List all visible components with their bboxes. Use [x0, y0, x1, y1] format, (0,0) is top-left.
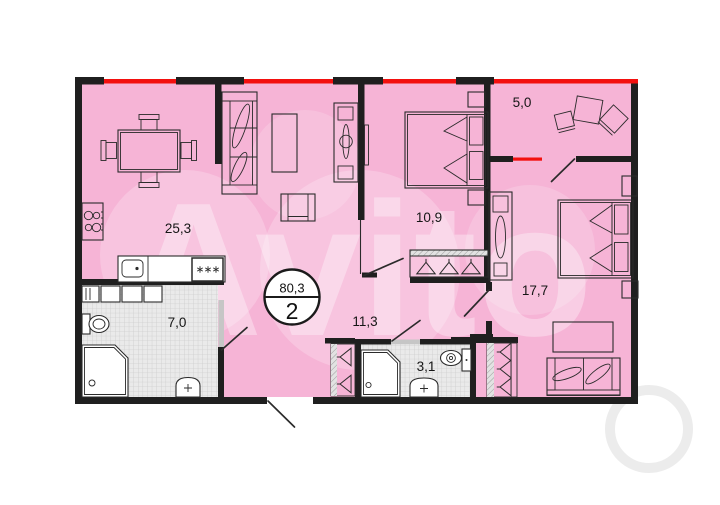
room-area-label: 11,3: [352, 314, 377, 329]
room-area-label: 17,7: [522, 283, 548, 298]
cabinet-row: [82, 286, 162, 302]
room-area-label: 10,9: [416, 210, 442, 225]
washbasin: [410, 378, 438, 397]
shower: [82, 345, 128, 397]
toilet: [82, 314, 109, 334]
entrance-door-swing: [268, 401, 295, 427]
floorplan-svg: Avito: [0, 0, 720, 505]
room-area-label: 7,0: [168, 315, 187, 330]
total-area-value: 80,3: [279, 281, 304, 296]
room-area-label: 3,1: [417, 359, 436, 374]
room-area-label: 5,0: [513, 95, 532, 110]
total-area-badge: 80,3 2: [265, 270, 320, 325]
floorplan-page: Avito: [0, 0, 720, 505]
washbasin: [176, 378, 200, 398]
room-area-label: 25,3: [165, 221, 191, 236]
window-line: [513, 158, 542, 161]
rooms-count-value: 2: [286, 298, 299, 324]
shower: [361, 350, 400, 397]
kitchen-counter: [118, 256, 225, 282]
